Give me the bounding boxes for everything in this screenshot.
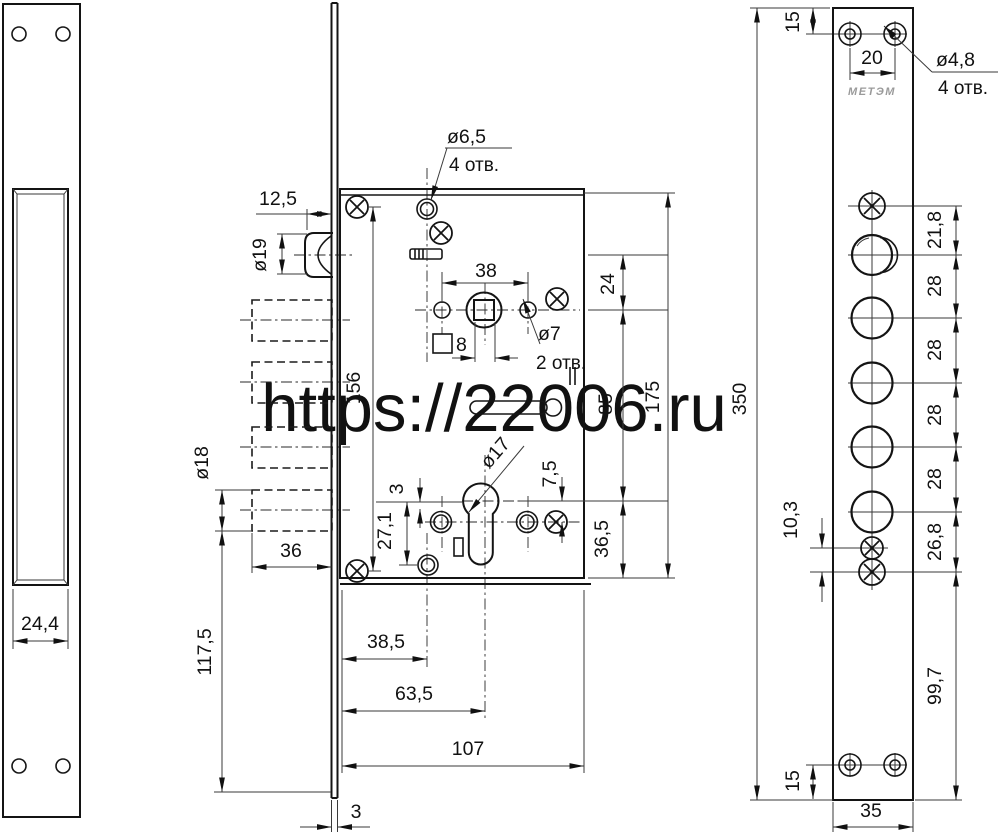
cylinder-keyhole bbox=[454, 483, 498, 564]
dim-spindle-square: 8 bbox=[456, 334, 467, 356]
dim-plate-width: 35 bbox=[860, 800, 882, 822]
dim-latch-to-spindle: 24 bbox=[597, 273, 619, 295]
screw-icon bbox=[346, 196, 368, 218]
drawing-canvas: https://22006.ru 24,4 bbox=[0, 0, 1000, 834]
dim-faceplate-thickness: 3 bbox=[351, 801, 362, 823]
dim-spindle-to-cylinder: 85 bbox=[595, 393, 617, 415]
dim-mount-hole-diameter: ø6,5 bbox=[447, 126, 486, 148]
dim-screw-to-latch: 21,8 bbox=[924, 211, 946, 249]
dim-handle-hole-diameter: ø7 bbox=[538, 323, 561, 345]
dim-bolt-pitch: 28 bbox=[924, 404, 946, 426]
dim-pocket-width: 24,4 bbox=[21, 613, 59, 635]
dim-plate-height: 350 bbox=[729, 383, 751, 416]
dim-cylinder-to-bottom: 36,5 bbox=[591, 520, 613, 558]
dim-cylinder-to-hole: 27,1 bbox=[374, 512, 396, 550]
dim-bolt-to-plate-end: 117,5 bbox=[194, 628, 216, 676]
dim-bolt-pitch: 28 bbox=[924, 339, 946, 361]
dim-edge-to-holes-bottom: 15 bbox=[782, 770, 804, 792]
dim-offset-3: 3 bbox=[386, 484, 408, 495]
screw-icon bbox=[546, 288, 568, 310]
faceplate-dimensions bbox=[757, 8, 998, 832]
dim-latch-protrusion: 12,5 bbox=[259, 188, 297, 210]
dim-case-height: 175 bbox=[642, 381, 664, 414]
dim-bolt-pitch: 28 bbox=[924, 275, 946, 297]
dim-bolt-diameter: ø18 bbox=[191, 446, 213, 480]
faceplate-labels: 15 20 ø4,8 4 отв. МЕТЭМ 350 21,8 28 28 2… bbox=[729, 11, 988, 822]
dim-mount-hole-count: 4 отв. bbox=[449, 155, 499, 176]
brand-logo: МЕТЭМ bbox=[848, 86, 896, 98]
lock-technical-drawing: https://22006.ru 24,4 bbox=[0, 0, 1000, 834]
dim-backset-1: 38,5 bbox=[367, 631, 405, 653]
dim-screw-span: 156 bbox=[343, 372, 365, 405]
dim-handle-hole-count: 2 отв. bbox=[536, 353, 586, 374]
dim-bolt-pitch: 28 bbox=[924, 468, 946, 490]
dim-case-depth: 107 bbox=[452, 738, 485, 760]
dim-handle-hole-span: 38 bbox=[475, 260, 497, 282]
pocket-inner bbox=[17, 194, 64, 580]
dim-backset-2: 63,5 bbox=[395, 683, 433, 705]
dim-top-hole-diameter: ø4,8 bbox=[936, 49, 975, 71]
cover-plate-view: 24,4 bbox=[3, 4, 80, 817]
dim-screw-gap: 10,3 bbox=[780, 501, 802, 539]
dim-screws-to-bottom: 99,7 bbox=[924, 667, 946, 705]
dim-top-hole-count: 4 отв. bbox=[938, 78, 988, 99]
dim-bolt-to-screws: 26,8 bbox=[924, 523, 946, 561]
dim-top-hole-span: 20 bbox=[861, 47, 883, 69]
dim-cylinder-offset: 7,5 bbox=[539, 460, 561, 487]
dim-latch-diameter: ø19 bbox=[249, 238, 271, 272]
screw-icon bbox=[430, 222, 452, 244]
pocket-outer bbox=[13, 189, 68, 585]
stop-pin bbox=[410, 249, 442, 259]
dim-bolt-throw: 36 bbox=[280, 540, 302, 562]
dimension-labels: 12,5 ø19 ø6,5 4 отв. 38 ø7 2 отв. 8 24 8… bbox=[191, 126, 664, 823]
faceplate-front-view: 15 20 ø4,8 4 отв. МЕТЭМ 350 21,8 28 28 2… bbox=[729, 8, 998, 832]
dim-edge-to-holes-top: 15 bbox=[782, 11, 804, 33]
